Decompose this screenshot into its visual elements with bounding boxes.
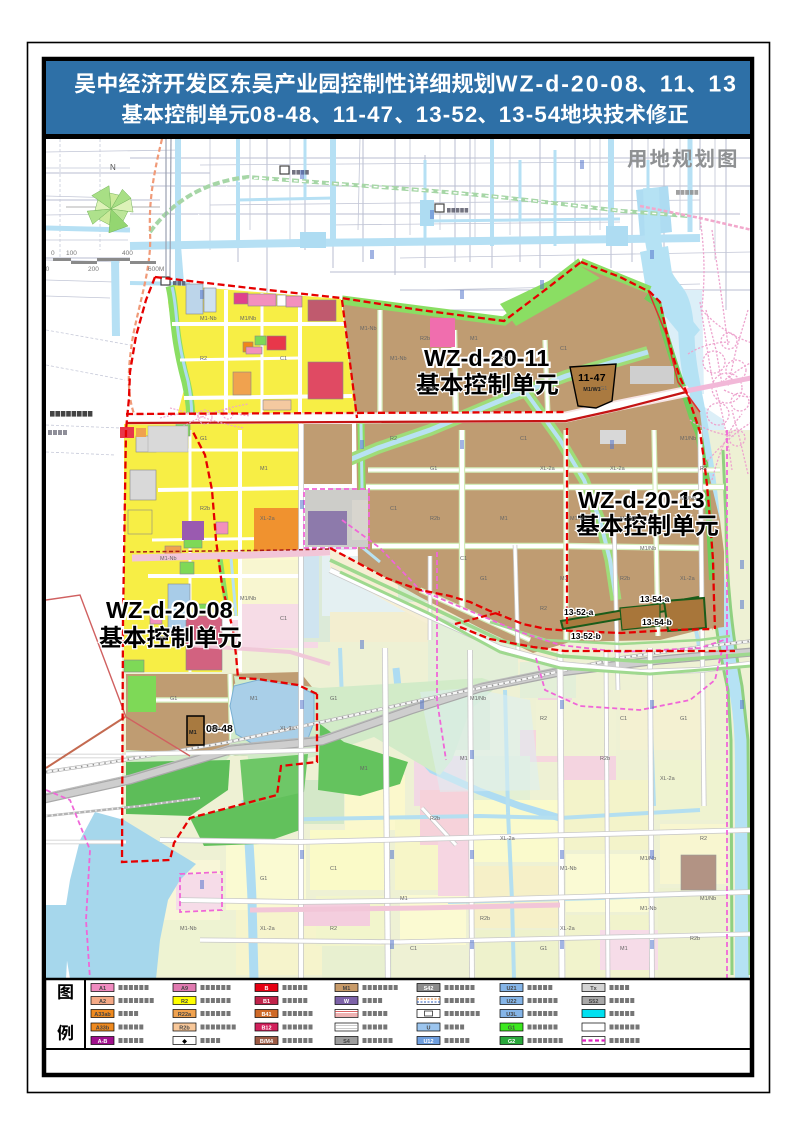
- svg-text:G1: G1: [170, 696, 177, 702]
- svg-text:11: 11: [660, 71, 688, 97]
- svg-text:M1: M1: [250, 696, 258, 702]
- svg-text:M1: M1: [560, 576, 568, 582]
- svg-text:R2b: R2b: [690, 936, 700, 942]
- svg-text:R2b: R2b: [210, 726, 220, 732]
- svg-text:XL-2a: XL-2a: [500, 836, 516, 842]
- svg-text:M1/Nb: M1/Nb: [240, 316, 256, 322]
- svg-text:M1-Nb: M1-Nb: [560, 866, 577, 872]
- svg-text:B/M4: B/M4: [260, 1039, 274, 1045]
- svg-text:R2b: R2b: [600, 756, 610, 762]
- svg-text:R2: R2: [700, 466, 707, 472]
- svg-text:A1: A1: [99, 986, 106, 992]
- svg-text:U: U: [427, 1025, 431, 1031]
- svg-text:G1: G1: [260, 876, 267, 882]
- svg-text:C1: C1: [410, 946, 417, 952]
- svg-text:M1/Nb: M1/Nb: [470, 696, 486, 702]
- svg-text:R22a: R22a: [178, 1012, 192, 1018]
- svg-text:R2: R2: [540, 606, 547, 612]
- svg-text:M1-Nb: M1-Nb: [570, 516, 587, 522]
- svg-text:R2b: R2b: [480, 916, 490, 922]
- svg-text:M1: M1: [400, 896, 408, 902]
- svg-text:11-47: 11-47: [578, 372, 606, 384]
- svg-text:M1: M1: [260, 466, 268, 472]
- svg-text:WZ-d-20-08: WZ-d-20-08: [106, 597, 233, 623]
- svg-text:G1: G1: [480, 576, 487, 582]
- svg-text:W: W: [344, 999, 350, 1005]
- svg-text:S42: S42: [424, 986, 434, 992]
- svg-text:M1/Nb: M1/Nb: [240, 596, 256, 602]
- svg-text:400: 400: [122, 250, 133, 257]
- svg-text:Tx: Tx: [590, 986, 597, 992]
- svg-text:C1: C1: [330, 866, 337, 872]
- svg-text:M1-Nb: M1-Nb: [360, 326, 377, 332]
- svg-text:R2b: R2b: [620, 576, 630, 582]
- svg-text:U21: U21: [506, 986, 516, 992]
- svg-text:M1: M1: [189, 730, 197, 736]
- svg-text:C1: C1: [560, 346, 567, 352]
- svg-text:XL-2a: XL-2a: [540, 466, 556, 472]
- svg-text:◆: ◆: [181, 1038, 187, 1045]
- svg-text:M1/W1: M1/W1: [583, 387, 600, 393]
- svg-text:C1: C1: [620, 716, 627, 722]
- svg-text:R2: R2: [500, 356, 507, 362]
- svg-text:M1-Nb: M1-Nb: [180, 926, 197, 932]
- svg-text:M1-Nb: M1-Nb: [620, 516, 637, 522]
- svg-text:G1: G1: [200, 436, 207, 442]
- svg-text:G1: G1: [508, 1025, 515, 1031]
- svg-text:M1: M1: [460, 756, 468, 762]
- svg-text:M1/Nb: M1/Nb: [420, 386, 436, 392]
- svg-text:13-52-b: 13-52-b: [571, 631, 601, 641]
- svg-text:U3L: U3L: [506, 1012, 517, 1018]
- svg-text:G1: G1: [430, 466, 437, 472]
- svg-text:13-54-a: 13-54-a: [640, 594, 670, 604]
- svg-text:13-54: 13-54: [499, 102, 562, 127]
- svg-text:U12: U12: [423, 1039, 433, 1045]
- svg-text:B1: B1: [263, 999, 270, 1005]
- svg-text:XL-2a: XL-2a: [280, 726, 296, 732]
- svg-text:U22: U22: [506, 999, 516, 1005]
- svg-text:M1: M1: [343, 986, 351, 992]
- svg-text:R2: R2: [160, 636, 167, 642]
- svg-text:R2b: R2b: [420, 336, 430, 342]
- svg-text:A33b: A33b: [96, 1025, 110, 1031]
- svg-text:R2b: R2b: [179, 1025, 190, 1031]
- svg-text:R2b: R2b: [200, 506, 210, 512]
- svg-text:600M: 600M: [148, 266, 164, 273]
- svg-text:R2b: R2b: [430, 516, 440, 522]
- svg-text:XL-2a: XL-2a: [260, 516, 276, 522]
- svg-text:A9: A9: [181, 986, 188, 992]
- svg-text:S52: S52: [589, 999, 599, 1005]
- svg-text:C1: C1: [390, 506, 397, 512]
- svg-text:C1: C1: [280, 616, 287, 622]
- svg-text:M1: M1: [360, 766, 368, 772]
- svg-text:M1-Nb: M1-Nb: [640, 906, 657, 912]
- svg-text:C1: C1: [520, 436, 527, 442]
- svg-text:13: 13: [708, 71, 738, 97]
- svg-text:XL-2a: XL-2a: [560, 926, 576, 932]
- svg-text:R2: R2: [200, 356, 207, 362]
- svg-text:A2: A2: [99, 999, 106, 1005]
- svg-text:100: 100: [66, 250, 77, 257]
- svg-text:WZ-d-20-11: WZ-d-20-11: [424, 345, 549, 371]
- svg-text:13-52: 13-52: [416, 102, 479, 127]
- svg-text:M1: M1: [470, 336, 478, 342]
- svg-text:R2: R2: [540, 716, 547, 722]
- svg-text:G1: G1: [540, 946, 547, 952]
- svg-text:A-B: A-B: [98, 1039, 108, 1045]
- svg-text:C1: C1: [280, 356, 287, 362]
- svg-text:C1: C1: [460, 556, 467, 562]
- svg-text:WZ-d-20-08: WZ-d-20-08: [496, 71, 640, 97]
- svg-text:M1-Nb: M1-Nb: [390, 356, 407, 362]
- svg-text:R2b: R2b: [430, 816, 440, 822]
- svg-text:M1/Nb: M1/Nb: [680, 436, 696, 442]
- svg-text:M1/Nb: M1/Nb: [700, 896, 716, 902]
- svg-text:M1/Nb: M1/Nb: [680, 496, 696, 502]
- svg-text:G1: G1: [600, 386, 607, 392]
- svg-text:11-47: 11-47: [333, 102, 395, 127]
- svg-text:M1: M1: [500, 516, 508, 522]
- svg-text:200: 200: [88, 266, 99, 273]
- svg-text:R2: R2: [700, 836, 707, 842]
- svg-text:N: N: [110, 163, 116, 172]
- svg-text:08-48: 08-48: [250, 102, 313, 127]
- svg-text:M1-Nb: M1-Nb: [160, 556, 177, 562]
- svg-text:M1/Nb: M1/Nb: [640, 546, 656, 552]
- svg-text:XL-2a: XL-2a: [610, 466, 626, 472]
- svg-text:G1: G1: [680, 716, 687, 722]
- svg-text:B41: B41: [261, 1012, 271, 1018]
- svg-text:XL-2a: XL-2a: [260, 926, 276, 932]
- svg-text:M1: M1: [620, 946, 628, 952]
- svg-text:XL-2a: XL-2a: [660, 776, 676, 782]
- svg-text:B12: B12: [261, 1025, 271, 1031]
- svg-text:XL-2a: XL-2a: [680, 576, 696, 582]
- svg-text:S4: S4: [343, 1039, 351, 1045]
- svg-text:13-52-a: 13-52-a: [564, 607, 594, 617]
- svg-text:B: B: [265, 986, 269, 992]
- svg-text:13-54-b: 13-54-b: [642, 617, 672, 627]
- svg-text:0: 0: [51, 250, 55, 257]
- svg-text:R2: R2: [181, 999, 188, 1005]
- svg-text:G1: G1: [330, 696, 337, 702]
- svg-text:R2: R2: [330, 926, 337, 932]
- svg-text:A33ab: A33ab: [94, 1012, 111, 1018]
- svg-text:G2: G2: [508, 1039, 515, 1045]
- svg-text:M1-Nb: M1-Nb: [200, 316, 217, 322]
- svg-text:R2: R2: [390, 436, 397, 442]
